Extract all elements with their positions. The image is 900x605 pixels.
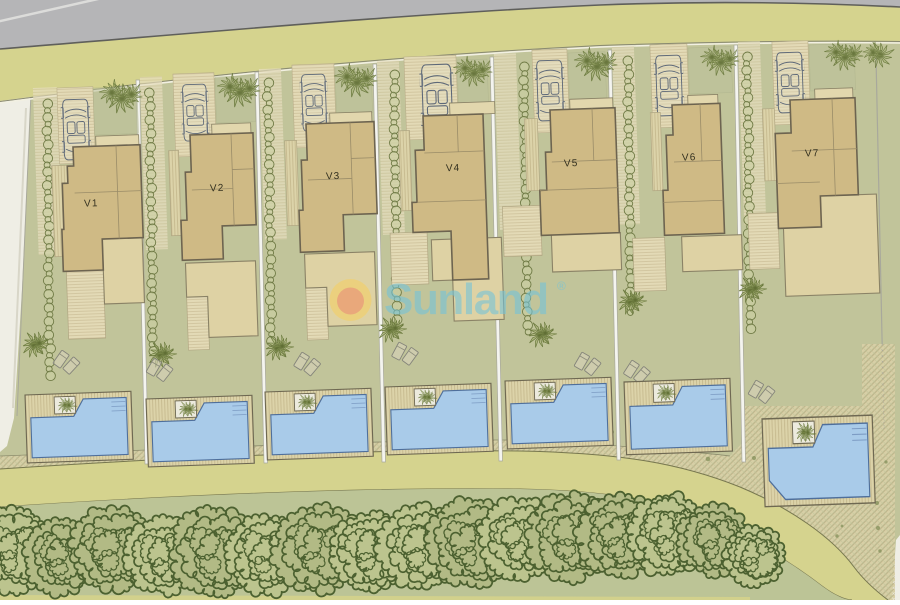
svg-text:V1: V1: [84, 198, 99, 210]
svg-text:V6: V6: [682, 152, 697, 164]
svg-text:®: ®: [557, 279, 566, 293]
svg-text:V5: V5: [564, 158, 579, 170]
svg-text:V2: V2: [210, 183, 225, 195]
svg-text:V7: V7: [805, 148, 820, 160]
svg-text:V4: V4: [446, 163, 461, 175]
svg-text:Sunland: Sunland: [384, 275, 548, 324]
svg-text:V3: V3: [326, 171, 341, 183]
